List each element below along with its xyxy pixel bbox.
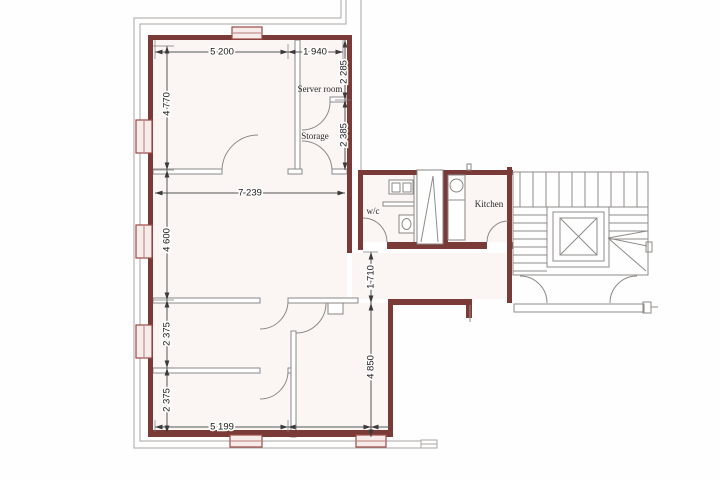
window bbox=[230, 435, 262, 447]
room-label-wc: w/c bbox=[367, 206, 380, 216]
window bbox=[136, 325, 152, 358]
room-label-storage: Storage bbox=[301, 131, 329, 141]
duct-shaft bbox=[417, 170, 443, 244]
stair-direction bbox=[608, 231, 647, 271]
floor-plan-screenshot: 5 200 1 940 7 239 5 199 4 770 4 600 2 37… bbox=[0, 0, 720, 480]
dim-server-col-width: 1 940 bbox=[303, 47, 327, 58]
dim-middle-room-width: 7 239 bbox=[238, 188, 262, 199]
dim-middle-room-height: 4 600 bbox=[162, 228, 173, 252]
door-arc bbox=[520, 276, 547, 303]
dim-storage-height: 2 385 bbox=[339, 123, 350, 147]
staircase bbox=[513, 172, 658, 313]
dim-hall-height: 1 710 bbox=[366, 265, 377, 289]
entry-landing bbox=[514, 302, 658, 313]
dim-right-room-height: 4 850 bbox=[366, 355, 377, 379]
stair-side-stub bbox=[646, 242, 652, 252]
dim-server-room-height: 2 285 bbox=[339, 60, 350, 84]
dim-lower-room-a-height: 2 375 bbox=[162, 322, 173, 346]
kitchen-counter bbox=[448, 175, 465, 240]
wall-stub bbox=[467, 164, 471, 170]
floor-plan-canvas: 5 200 1 940 7 239 5 199 4 770 4 600 2 37… bbox=[0, 0, 720, 480]
window bbox=[232, 27, 262, 39]
room-label-kitchen: Kitchen bbox=[475, 199, 504, 209]
dim-top-room-height: 4 770 bbox=[162, 92, 173, 116]
kitchen-sink-symbol bbox=[450, 179, 463, 192]
door-arc bbox=[610, 276, 637, 303]
toilet-symbol bbox=[399, 215, 414, 233]
window bbox=[136, 120, 152, 153]
dim-bottom-width: 5 199 bbox=[210, 422, 234, 433]
room-label-server: Server room bbox=[298, 84, 343, 94]
window bbox=[136, 225, 152, 258]
stair-treads bbox=[513, 172, 648, 271]
cabinet-symbol bbox=[328, 303, 343, 314]
dim-lower-room-b-height: 2 375 bbox=[162, 388, 173, 412]
dim-room-top-width: 5 200 bbox=[210, 47, 234, 58]
elevator bbox=[553, 212, 604, 261]
